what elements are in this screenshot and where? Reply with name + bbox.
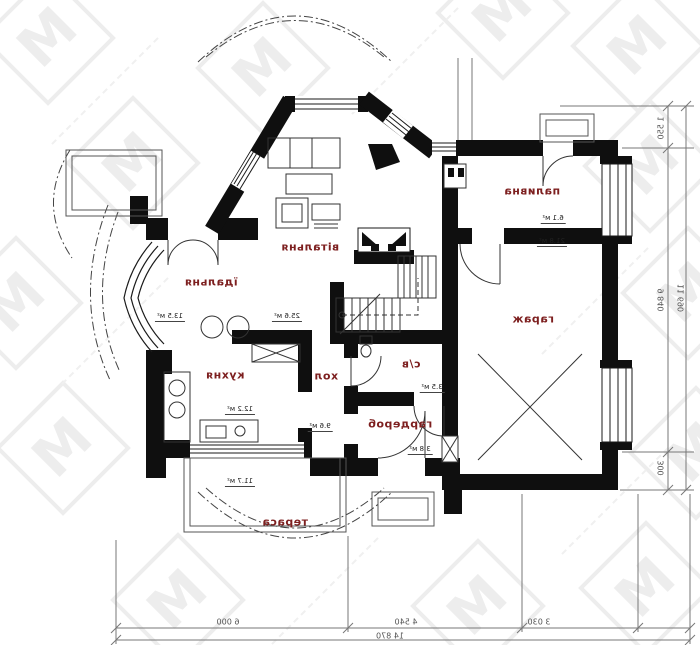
area-label-vitalnia: 25.6 м² bbox=[272, 312, 302, 322]
area-label-kukhnia: 12.2 м² bbox=[225, 405, 255, 415]
room-label-harazh: гараж bbox=[512, 313, 554, 326]
floor-plan-canvas: М М М М М М М М М М М М М bbox=[0, 0, 700, 645]
room-label-harderob: гардероб bbox=[368, 418, 433, 431]
dim-right-total: 11 690 bbox=[677, 284, 686, 312]
staircase bbox=[336, 256, 436, 334]
area-label-sv: 3.5 м² bbox=[419, 383, 444, 393]
dim-right-1: 1 550 bbox=[657, 117, 666, 140]
dim-bottom-3: 3 030 bbox=[528, 618, 551, 627]
area-label-terasa: 11.7 м² bbox=[225, 477, 255, 487]
dim-right-2: 9 840 bbox=[657, 289, 666, 312]
room-label-idalnia: їдальня bbox=[184, 276, 237, 289]
room-label-vitalnia: вітальня bbox=[281, 241, 339, 254]
area-label-khol: 9.6 м² bbox=[307, 422, 332, 432]
curved-bay-window bbox=[124, 242, 164, 352]
room-label-kukhnia: кухня bbox=[206, 369, 245, 382]
room-label-palyvna: паливна bbox=[504, 185, 560, 198]
area-label-harazh: 21.8 м² bbox=[537, 237, 567, 247]
dim-right-3: 300 bbox=[657, 460, 666, 475]
fireplace bbox=[358, 228, 410, 252]
dim-bottom-total: 14 870 bbox=[376, 632, 404, 641]
area-label-idalnia: 13.5 м² bbox=[155, 312, 185, 322]
room-label-khol: хол bbox=[314, 370, 338, 383]
floor-plan-drawing bbox=[0, 0, 700, 645]
dim-bottom-2: 4 540 bbox=[395, 618, 418, 627]
area-label-harderob: 3.8 м² bbox=[407, 445, 432, 455]
bay-walls bbox=[212, 98, 434, 230]
room-label-terasa: тераса bbox=[262, 516, 308, 529]
room-label-sv: с/в bbox=[402, 358, 421, 371]
dim-bottom-1: 6 000 bbox=[217, 618, 240, 627]
area-label-palyvna: 6.1 м² bbox=[540, 214, 565, 224]
